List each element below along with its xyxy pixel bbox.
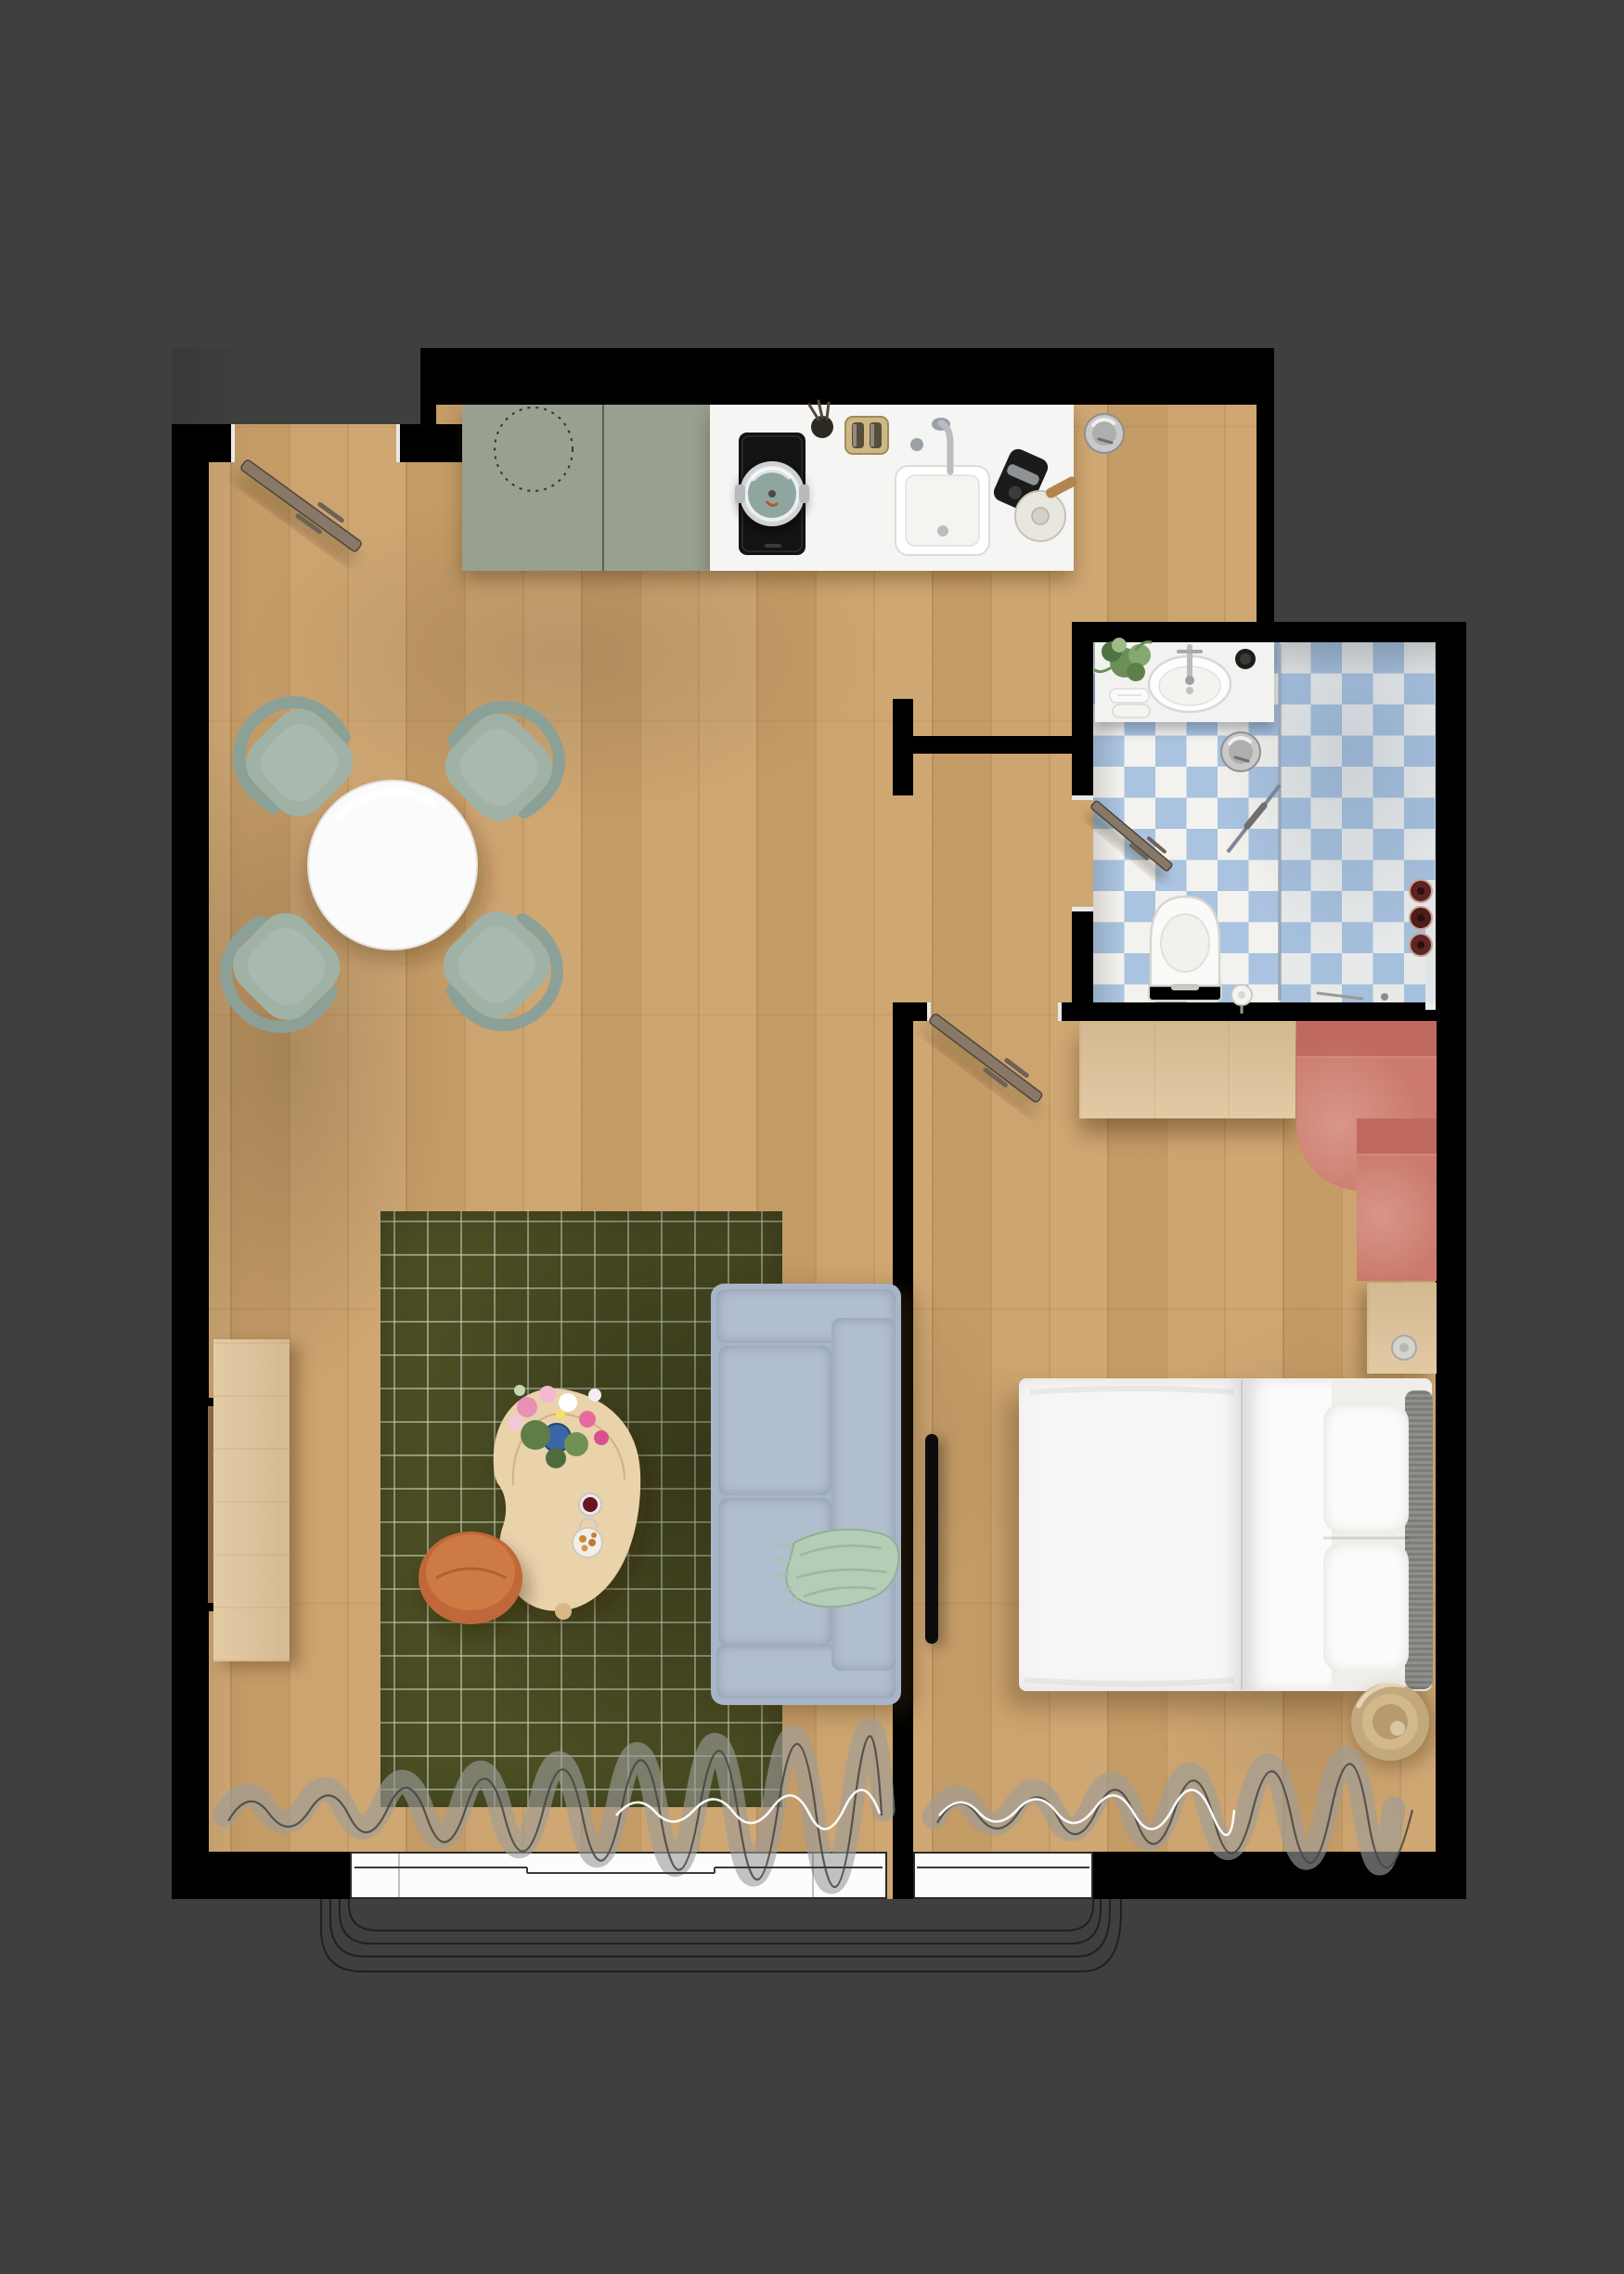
bed-fold-lines (1025, 1380, 1409, 1689)
toaster (845, 417, 888, 454)
kitchen-sink (896, 466, 989, 555)
bottom-window-frames (354, 1854, 1089, 1897)
toilet (1149, 897, 1221, 1001)
balcony-railing-lines (321, 1899, 1121, 1971)
nightstand-knob (1392, 1336, 1416, 1360)
bedroom-door (924, 1013, 1043, 1114)
dining-set (205, 681, 581, 1049)
utensil-holder (809, 401, 833, 438)
kitchen-faucet (910, 418, 950, 472)
vanity-cup (1235, 649, 1256, 669)
curtain-squiggle-bedroom (934, 1757, 1412, 1867)
floor-plan-canvas (0, 0, 1624, 2274)
bathroom-waste-bin (1221, 732, 1260, 771)
throw-blanket (777, 1530, 899, 1607)
sun-hat (1351, 1683, 1435, 1767)
curtain-squiggle-living (225, 1729, 883, 1887)
vanity-towels (1110, 689, 1150, 717)
snack-bowl (573, 1528, 602, 1557)
detail-overlay (0, 0, 1624, 2274)
entry-door (236, 459, 363, 562)
shower-bottles (1410, 880, 1432, 956)
vanity-plant (1095, 638, 1151, 681)
toilet-paper-holder (1231, 985, 1252, 1014)
range-hood-dashed-circle (495, 407, 573, 491)
shower-glass-partition (1228, 642, 1436, 1002)
trash-bin (1085, 414, 1124, 453)
bathroom-door (1086, 800, 1173, 882)
